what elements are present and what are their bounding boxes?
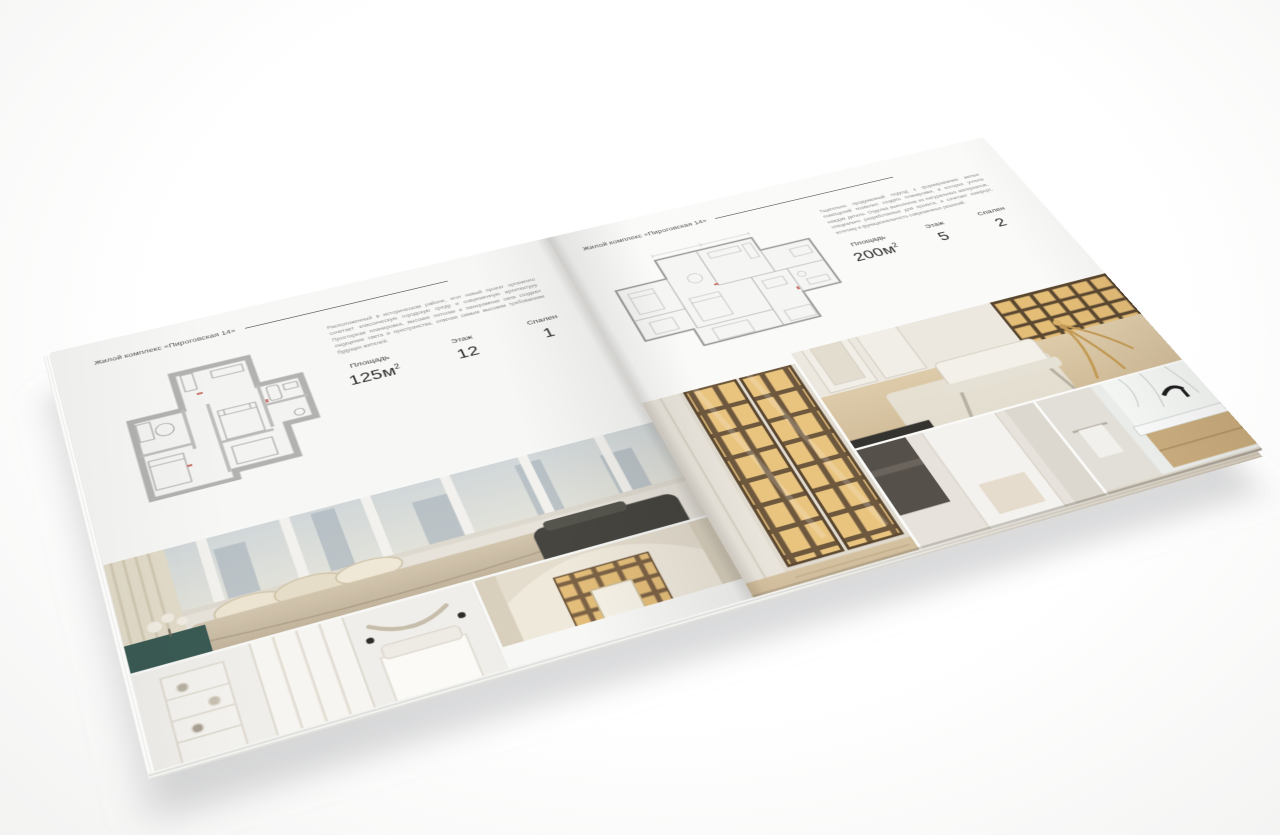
stat-floor-value: 5 (935, 230, 954, 244)
stat-bedrooms: Спален 2 (976, 205, 1020, 232)
stat-area: Площадь 125м2 (342, 352, 404, 389)
scene-background: Жилой комплекс «Пироговская 14» (0, 0, 1280, 835)
stat-bedrooms-value: 2 (992, 216, 1011, 229)
stat-bedrooms-label: Спален (525, 313, 559, 327)
stat-bedrooms-label: Спален (976, 205, 1007, 217)
stat-floor: Этаж 12 (450, 334, 483, 363)
stat-floor-label: Этаж (923, 220, 946, 230)
stat-floor-label: Этаж (450, 334, 474, 346)
stat-floor: Этаж 5 (923, 220, 958, 245)
open-brochure: Жилой комплекс «Пироговская 14» (50, 137, 1263, 771)
stat-bedrooms-value: 1 (541, 325, 558, 340)
stat-area: Площадь 200м2 (844, 233, 905, 265)
stat-bedrooms: Спален 1 (525, 313, 568, 343)
stat-floor-value: 12 (454, 344, 482, 362)
